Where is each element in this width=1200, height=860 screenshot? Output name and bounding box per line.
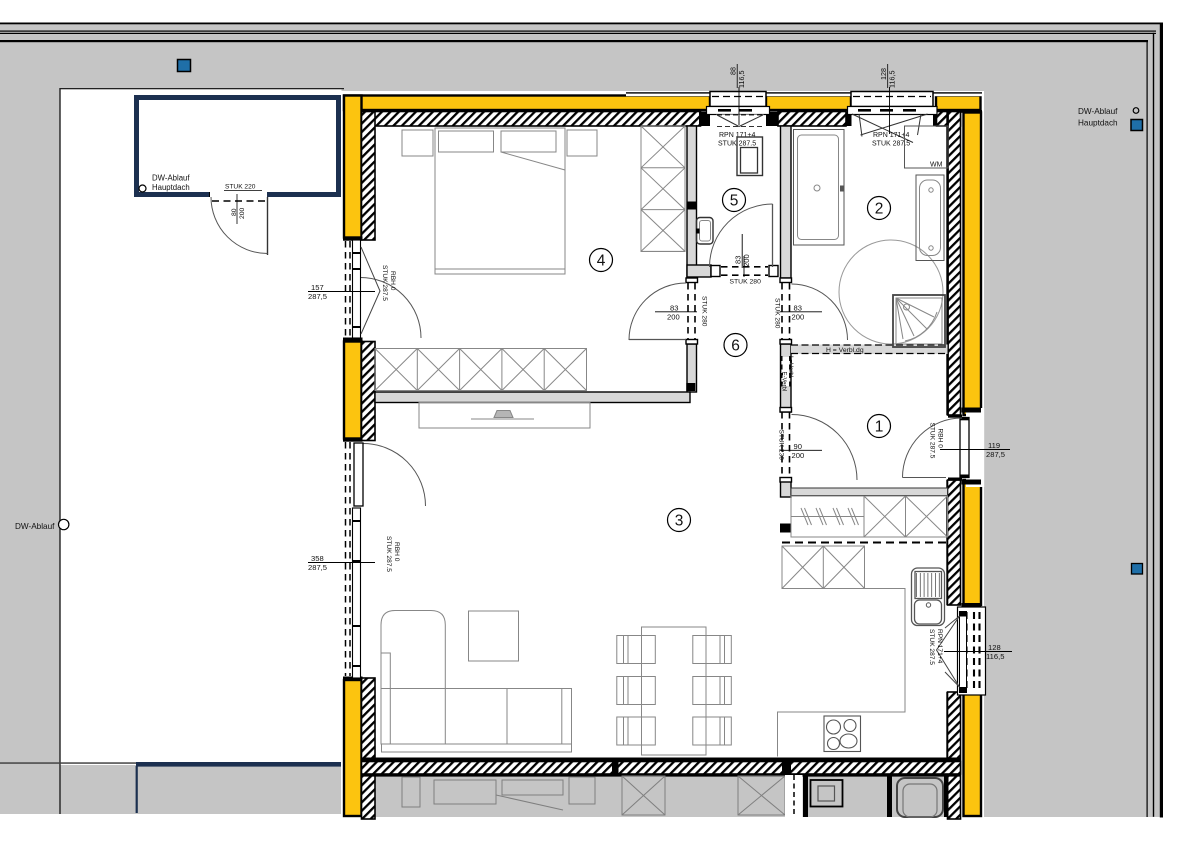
svg-text:STUK 287.5: STUK 287.5: [381, 265, 388, 301]
svg-text:116,5: 116,5: [986, 652, 1004, 661]
svg-text:1: 1: [875, 419, 884, 436]
svg-text:DW-Ablauf: DW-Ablauf: [152, 174, 190, 183]
svg-text:287,5: 287,5: [986, 450, 1005, 459]
svg-text:WM: WM: [930, 162, 943, 169]
svg-text:STUK 230: STUK 230: [778, 430, 785, 461]
svg-text:STUK 220: STUK 220: [225, 184, 256, 191]
svg-text:90: 90: [794, 442, 802, 451]
svg-text:116,5: 116,5: [737, 71, 746, 88]
svg-text:H = Verbl.dg: H = Verbl.dg: [826, 347, 864, 354]
svg-text:5: 5: [730, 193, 739, 210]
svg-text:200: 200: [667, 313, 680, 322]
svg-text:287,5: 287,5: [308, 292, 327, 301]
svg-text:STUK 280: STUK 280: [701, 296, 708, 327]
svg-text:STUK 287.5: STUK 287.5: [385, 536, 392, 572]
svg-text:128: 128: [988, 643, 1001, 652]
svg-text:RBH 0: RBH 0: [937, 429, 944, 449]
svg-text:3: 3: [675, 513, 684, 530]
svg-text:STUK 287.5: STUK 287.5: [928, 629, 935, 665]
svg-text:RPN 171+4: RPN 171+4: [936, 629, 943, 664]
svg-text:83: 83: [670, 304, 678, 313]
svg-text:6: 6: [731, 338, 740, 355]
svg-text:4: 4: [597, 253, 606, 270]
svg-text:STUK 280: STUK 280: [730, 279, 762, 286]
svg-text:Hauptdach: Hauptdach: [1078, 119, 1118, 128]
svg-text:200: 200: [239, 207, 246, 219]
svg-text:287,5: 287,5: [308, 563, 327, 572]
svg-text:2: 2: [875, 201, 884, 218]
svg-text:Hauptdach: Hauptdach: [152, 183, 190, 192]
svg-text:200: 200: [792, 313, 805, 322]
svg-text:E-Verbl: E-Verbl: [781, 372, 787, 392]
svg-text:RBH 0: RBH 0: [393, 542, 400, 562]
svg-text:L=Verbl: L=Verbl: [787, 356, 794, 377]
svg-text:116,5: 116,5: [888, 71, 897, 88]
svg-text:DW-Ablauf: DW-Ablauf: [15, 522, 55, 531]
svg-text:STUK 280: STUK 280: [774, 298, 781, 329]
svg-text:200: 200: [742, 254, 751, 267]
svg-text:119: 119: [988, 441, 1000, 450]
svg-text:157: 157: [311, 283, 324, 292]
svg-text:200: 200: [792, 451, 805, 460]
svg-text:358: 358: [311, 554, 324, 563]
svg-text:DW-Ablauf: DW-Ablauf: [1078, 107, 1118, 116]
svg-text:STUK 287.5: STUK 287.5: [929, 423, 936, 459]
svg-text:83: 83: [794, 304, 802, 313]
svg-text:RBH 0: RBH 0: [389, 271, 396, 291]
